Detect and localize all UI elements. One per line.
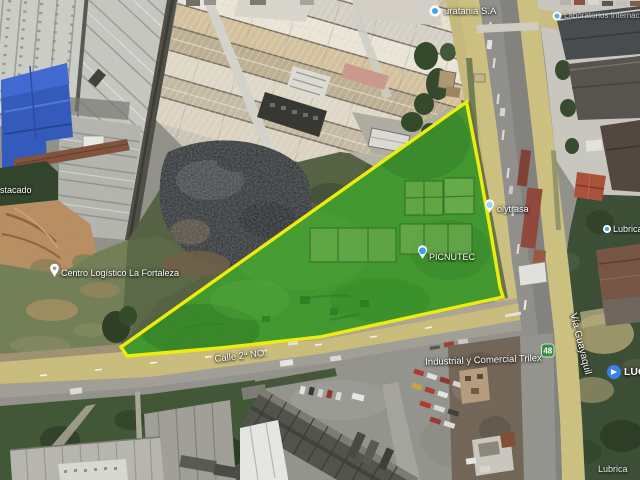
svg-text:48: 48 — [543, 347, 552, 356]
